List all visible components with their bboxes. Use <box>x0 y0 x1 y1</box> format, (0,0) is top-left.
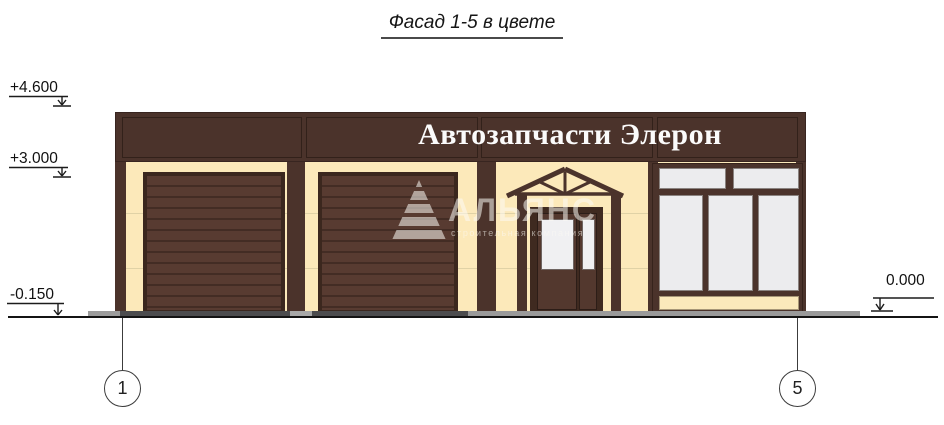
storefront-window-2 <box>708 195 753 291</box>
axis-line-5 <box>797 318 798 371</box>
door-side-panel <box>579 213 597 310</box>
drawing-title: Фасад 1-5 в цвете <box>381 12 564 39</box>
garage-door-2 <box>318 172 458 314</box>
garage-door-1 <box>143 172 285 314</box>
elevation-mark-linework <box>864 290 942 316</box>
axis-bubble-1: 1 <box>104 370 141 407</box>
entrance-door-frame <box>530 207 603 314</box>
storefront-window-3 <box>758 195 799 291</box>
axis-line-1 <box>122 318 123 371</box>
axis-number: 5 <box>792 378 802 399</box>
elevation-mark-plus-4600: +4.600 <box>6 79 86 125</box>
shop-sign-text: Автозапчасти Элерон <box>395 118 745 152</box>
elevation-mark-plus-3000: +3.000 <box>6 150 86 196</box>
entrance-post-left <box>517 195 527 314</box>
facade-drawing: Фасад 1-5 в цвете +4.600 +3.000 -0.150 <box>0 0 944 425</box>
drawing-title-wrap: Фасад 1-5 в цвете <box>0 12 944 39</box>
sign-band-panel-1 <box>122 117 302 158</box>
elevation-mark-linework <box>6 93 76 115</box>
elevation-mark-minus-0150: -0.150 <box>4 286 84 332</box>
storefront-window-1 <box>659 195 703 291</box>
pilaster-left-edge <box>115 162 126 314</box>
ground-line <box>8 316 938 318</box>
elevation-mark-linework <box>6 164 76 186</box>
storefront <box>652 163 803 314</box>
elevation-value: 0.000 <box>886 272 925 290</box>
entrance-post-right <box>611 195 621 314</box>
door-glass <box>541 219 574 270</box>
pilaster-section-2-3 <box>477 162 496 314</box>
axis-bubble-5: 5 <box>779 370 816 407</box>
side-panel-glass <box>582 219 595 270</box>
door-main-leaf <box>537 213 577 310</box>
transom-window-1 <box>659 168 726 189</box>
storefront-base-panel <box>659 296 799 310</box>
elevation-mark-zero: 0.000 <box>864 272 944 318</box>
transom-window-2 <box>733 168 799 189</box>
pilaster-section-1-2 <box>287 162 305 314</box>
axis-number: 1 <box>117 378 127 399</box>
